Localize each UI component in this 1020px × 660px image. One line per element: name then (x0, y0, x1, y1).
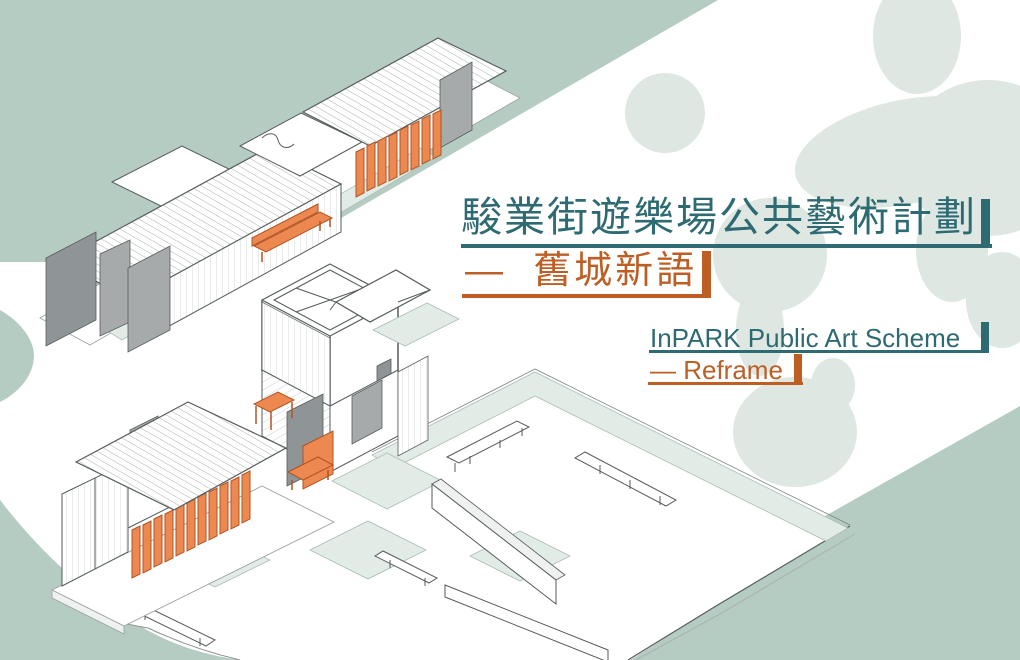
subtitle-en-endbar (794, 354, 802, 385)
subtitle-zh-endbar (702, 251, 711, 298)
title-zh-underline (461, 244, 992, 248)
title-en-endbar (981, 322, 989, 353)
subtitle-zh-underline (462, 294, 711, 298)
door-leaf (100, 240, 130, 336)
title-zh-endbar (981, 199, 990, 248)
subtitle-en-underline (648, 382, 803, 385)
subtitle-en: — Reframe (650, 357, 783, 383)
title-zh: 駿業街遊樂場公共藝術計劃 (461, 197, 977, 238)
subtitle-zh: — 舊城新語 (465, 252, 697, 290)
title-en: InPARK Public Art Scheme (650, 325, 960, 351)
side-container (398, 356, 428, 456)
title-en-underline (649, 350, 989, 353)
poster: 駿業街遊樂場公共藝術計劃 — 舊城新語 InPARK Public Art Sc… (0, 0, 1020, 660)
